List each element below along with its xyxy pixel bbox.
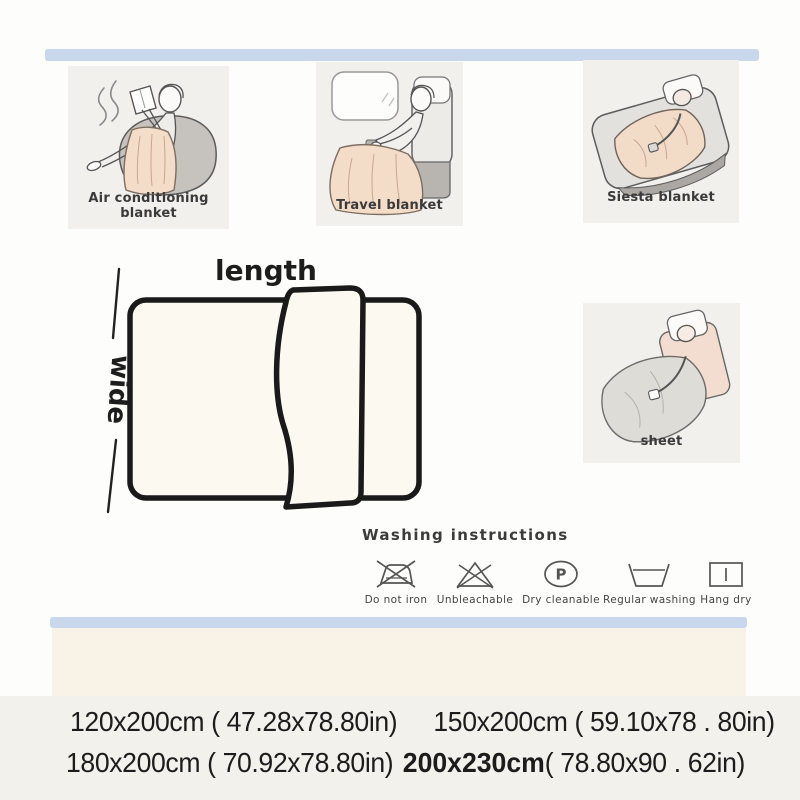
size-diagram-drawing: length wide [80, 246, 448, 522]
washing-item-label: Unbleachable [433, 594, 517, 606]
person-head [159, 86, 181, 112]
washing-item-label: Hang dry [693, 594, 759, 606]
size-180x200: 180x200cm ( 70.92x78.80in) [66, 747, 393, 779]
cream-band [52, 628, 746, 700]
unbleachable-icon [453, 558, 497, 590]
size-row-1: 120x200cm ( 47.28x78.80in) 150x200cm ( 5… [70, 706, 775, 738]
regular-washing-icon [625, 558, 673, 590]
size-150x200: 150x200cm ( 59.10x78 . 80in) [433, 706, 774, 738]
scene-siesta-blanket: Siesta blanket [583, 60, 739, 223]
length-label: length [215, 254, 317, 287]
washing-item-label: Regular washing [603, 594, 695, 606]
steam-icon [99, 81, 119, 125]
scene-sheet: sheet [583, 303, 740, 463]
dry-clean-letter: P [556, 566, 567, 584]
dry-cleanable-icon: P [539, 558, 583, 590]
blanket-size-diagram: length wide [80, 246, 448, 522]
washing-item-hang-dry: Hang dry [693, 558, 759, 606]
bottom-accent-strip [50, 617, 747, 628]
cord-plug [648, 389, 660, 400]
cord-plug [648, 142, 659, 152]
wide-label: wide [101, 354, 136, 425]
scene-label-siesta: Siesta blanket [583, 190, 739, 205]
washing-item-label: Do not iron [357, 594, 435, 606]
washing-item-do-not-iron: Do not iron [357, 558, 435, 606]
scene-label-sheet: sheet [583, 434, 740, 449]
airplane-window [332, 72, 398, 120]
blanket-fold-band [277, 288, 363, 507]
scene-air-conditioning-blanket: Air conditioning blanket [68, 66, 229, 229]
size-200x230-inches: ( 78.80x90 . 62in) [545, 747, 745, 779]
hang-dry-icon [704, 558, 748, 590]
washing-item-label: Dry cleanable [519, 594, 603, 606]
washing-item-dry-cleanable: P Dry cleanable [519, 558, 603, 606]
person-head [411, 87, 431, 111]
size-200x230: 200x230cm [403, 747, 545, 779]
washing-item-regular-washing: Regular washing [603, 558, 695, 606]
person-foot [86, 160, 102, 172]
washing-instructions-section: Washing instructions Do not iron Unbleac… [350, 524, 770, 610]
washing-instructions-title: Washing instructions [362, 526, 569, 544]
blanket-drape [124, 127, 176, 194]
washing-item-unbleachable: Unbleachable [433, 558, 517, 606]
scene-label-air: Air conditioning blanket [68, 191, 229, 221]
size-row-2: 180x200cm ( 70.92x78.80in) 200x230cm ( 7… [66, 747, 745, 779]
scene-travel-blanket: Travel blanket [316, 62, 463, 226]
blanket-outline [130, 300, 419, 498]
scene-label-travel: Travel blanket [316, 198, 463, 213]
size-120x200: 120x200cm ( 47.28x78.80in) [70, 706, 397, 738]
do-not-iron-icon [374, 558, 418, 590]
